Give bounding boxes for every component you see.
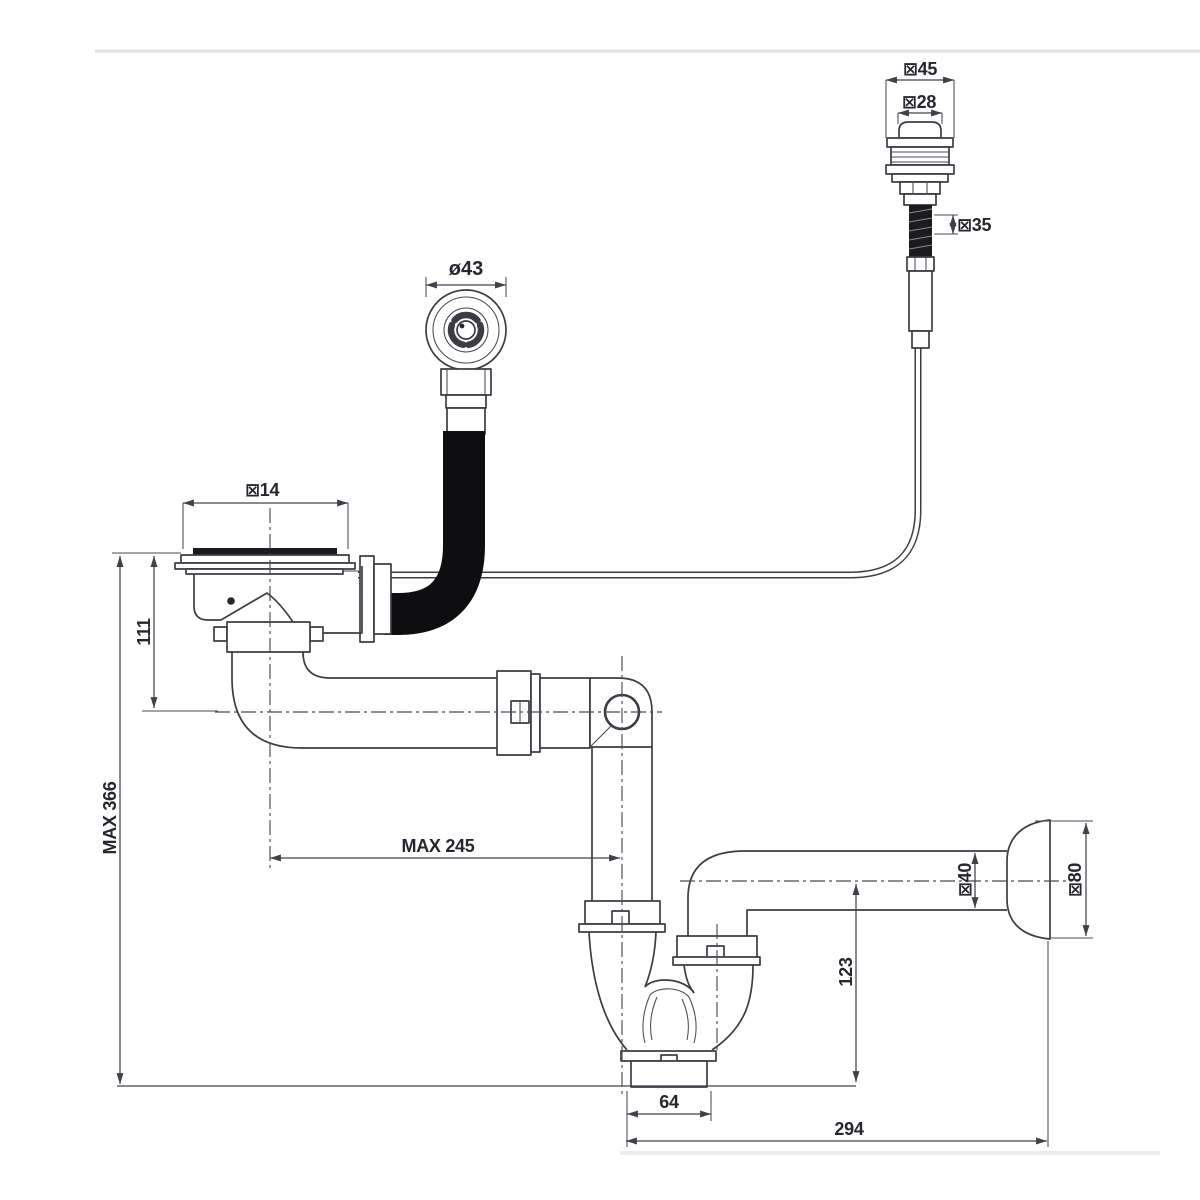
button-neck bbox=[904, 194, 936, 205]
strainer-grid-plate bbox=[193, 548, 337, 555]
drain-bowl-pivot-dot bbox=[227, 597, 235, 605]
cable-coupling bbox=[907, 257, 934, 271]
tailpiece-nut bbox=[227, 622, 310, 652]
dim-escutcheon-label: ⊠80 bbox=[1065, 863, 1085, 897]
push-button-control bbox=[886, 122, 954, 348]
overflow-tailpiece bbox=[447, 408, 485, 434]
dim-button-thread-label: ⊠35 bbox=[957, 215, 991, 235]
dim-wall-length-label: 294 bbox=[834, 1119, 863, 1139]
trap-cup-right-outer bbox=[712, 965, 753, 1050]
overflow-collar bbox=[446, 395, 486, 408]
cable-connector bbox=[912, 331, 929, 348]
cable-sleeve bbox=[909, 271, 932, 331]
sleeve-lip bbox=[531, 674, 540, 752]
centerlines bbox=[215, 508, 1072, 1098]
wall-outlet-pipe bbox=[688, 820, 1050, 939]
dim-outlet-pipe-label: ⊠40 bbox=[955, 863, 975, 897]
tailpiece-nut-tab-left bbox=[214, 627, 227, 641]
dim-strainer-depth-label: 111 bbox=[134, 618, 154, 645]
wall-escutcheon-bell bbox=[1007, 820, 1050, 939]
dim-outlet-drop-label: 123 bbox=[836, 957, 856, 986]
tailpiece-nut-tab-right bbox=[310, 627, 323, 641]
dim-button-flange-label: ⊠45 bbox=[903, 59, 937, 79]
button-backnut bbox=[900, 182, 940, 194]
drain-outlet-pipe-and-elbow bbox=[232, 652, 652, 901]
bottle-trap bbox=[579, 901, 760, 1087]
technical-drawing-canvas: ⊠45 ⊠28 ⊠35 ø43 ⊠14 111 MAX 366 MAX 245 … bbox=[0, 0, 1200, 1200]
dim-button-cap-label: ⊠28 bbox=[902, 92, 936, 112]
button-flange bbox=[887, 138, 953, 147]
pipe-bend-outer bbox=[232, 652, 497, 748]
dim-max-height-label: MAX 366 bbox=[100, 781, 120, 854]
cleanout-cap bbox=[631, 1061, 707, 1087]
overflow-screw-dot bbox=[460, 324, 465, 329]
trap-cup-right-inner bbox=[684, 965, 694, 993]
sink-strainer-drain bbox=[175, 548, 391, 652]
trap-cup-left-inner bbox=[645, 932, 656, 987]
overflow-fitting bbox=[384, 290, 506, 614]
trap-dome-outer bbox=[645, 980, 694, 993]
pipe-bend-inner bbox=[303, 652, 497, 678]
overflow-corrugated-hose bbox=[384, 431, 464, 614]
dim-cleanout-width-label: 64 bbox=[659, 1092, 679, 1112]
drain-assembly-drawing: ⊠45 ⊠28 ⊠35 ø43 ⊠14 111 MAX 366 MAX 245 … bbox=[0, 0, 1200, 1200]
trap-cup-left-outer bbox=[589, 932, 627, 1050]
dim-strainer-label: ⊠14 bbox=[245, 480, 279, 500]
overflow-hub bbox=[457, 321, 475, 339]
strainer-lower-plate bbox=[186, 569, 343, 574]
button-locknut-flange bbox=[886, 165, 954, 174]
strainer-seal-plate bbox=[175, 563, 355, 569]
overflow-body bbox=[441, 369, 491, 395]
sleeve-body bbox=[540, 678, 590, 748]
wall-pipe-inner bbox=[747, 910, 1007, 936]
overflow-inlet-nut bbox=[374, 564, 391, 634]
dim-overflow-label: ø43 bbox=[449, 258, 483, 280]
button-cap bbox=[899, 122, 941, 138]
button-washer bbox=[892, 174, 948, 182]
dim-max-reach-label: MAX 245 bbox=[402, 836, 475, 856]
strainer-top-flange bbox=[181, 555, 349, 563]
